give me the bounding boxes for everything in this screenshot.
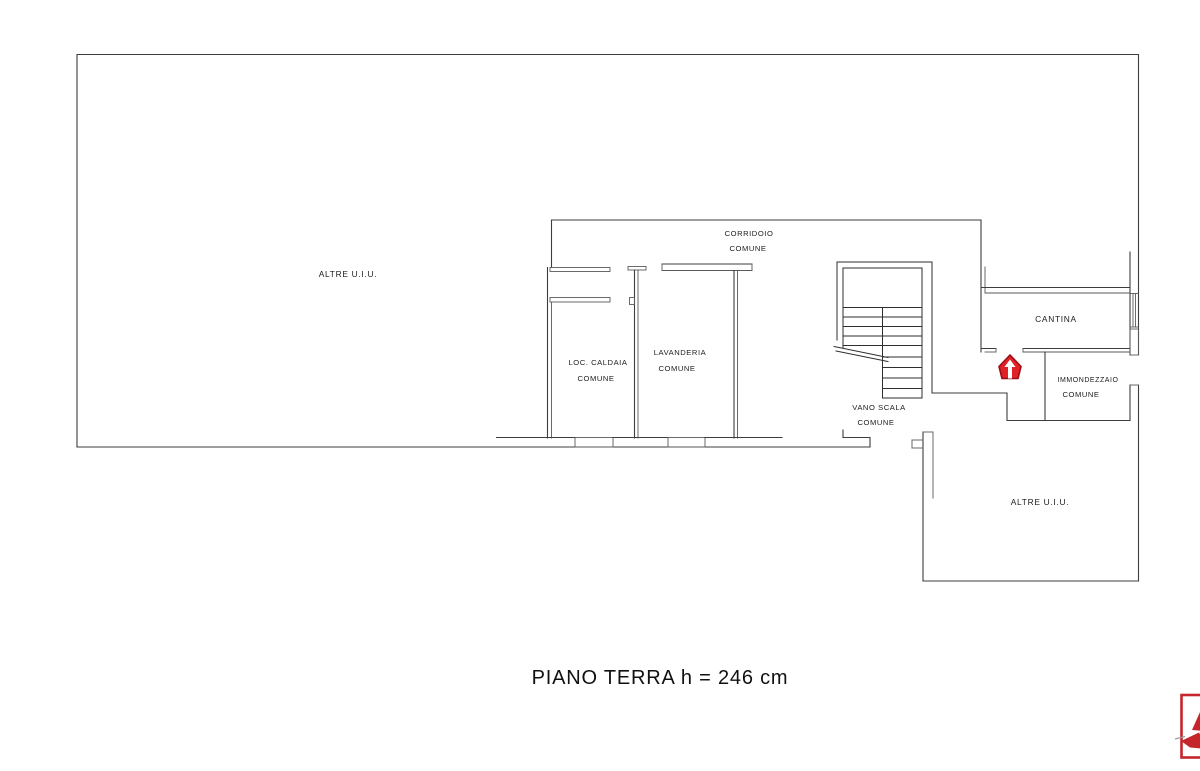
label-lavanderia: LAVANDERIA <box>654 348 707 357</box>
label-loc-caldaia: LOC. CALDAIA <box>569 358 628 367</box>
lobby-walls <box>932 393 1045 421</box>
label-immondezzaio: IMMONDEZZAIO <box>1057 377 1118 384</box>
plan-title: PIANO TERRA h = 246 cm <box>532 667 789 689</box>
south-wall <box>497 430 871 447</box>
label-corridoio: CORRIDOIO <box>725 229 774 238</box>
left-rooms-walls <box>548 264 753 438</box>
floorplan-page: ALTRE U.I.U. CORRIDOIO COMUNE LOC. CALDA… <box>0 0 1200 771</box>
immondezzaio-walls <box>1045 352 1139 421</box>
label-immondezzaio-comune: COMUNE <box>1062 390 1099 399</box>
bottom-right-room-walls <box>912 432 933 581</box>
label-cantina: CANTINA <box>1035 314 1077 324</box>
entrance-arrow-icon <box>999 355 1021 379</box>
label-altre-uiu-left: ALTRE U.I.U. <box>319 269 378 279</box>
outer-walls <box>77 55 1139 582</box>
label-vano-scala: VANO SCALA <box>852 403 906 412</box>
label-altre-uiu-bottom: ALTRE U.I.U. <box>1011 497 1070 507</box>
agency-logo <box>1175 695 1200 758</box>
staircase <box>834 262 932 398</box>
label-vano-scala-comune: COMUNE <box>857 418 894 427</box>
floorplan-drawing: ALTRE U.I.U. CORRIDOIO COMUNE LOC. CALDA… <box>0 0 1200 771</box>
label-corridoio-comune: COMUNE <box>729 244 766 253</box>
label-loc-caldaia-comune: COMUNE <box>577 374 614 383</box>
corridor-walls <box>552 220 986 352</box>
label-lavanderia-comune: COMUNE <box>658 364 695 373</box>
cantina-walls <box>981 252 1139 355</box>
